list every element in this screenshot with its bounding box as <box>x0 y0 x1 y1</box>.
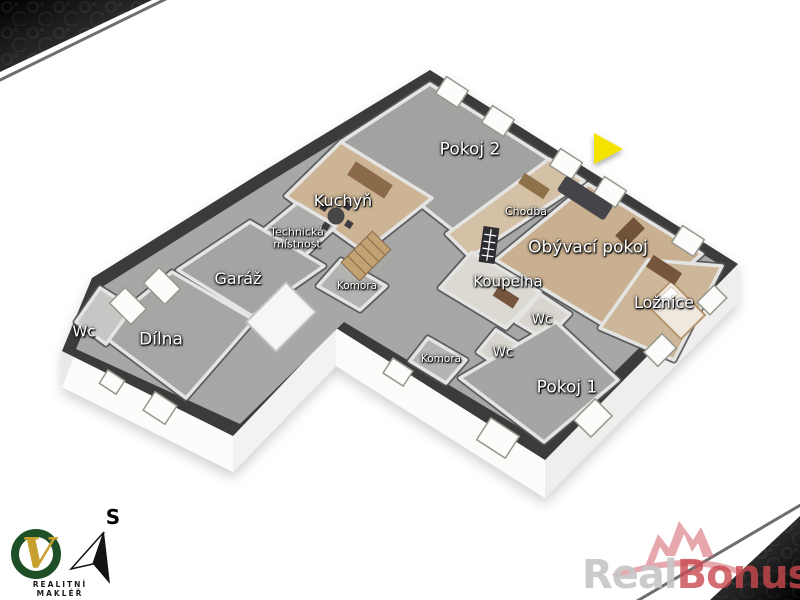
room-label-pokoj-1: Pokoj 1 <box>537 378 598 397</box>
compass-label: S <box>106 505 120 529</box>
watermark-real: Real <box>582 552 677 598</box>
building <box>62 70 738 498</box>
room-label-loznice: Ložnice <box>634 294 694 312</box>
brand-logo: V <box>15 529 59 578</box>
room-label-obyvaci-pokoj: Obývací pokoj <box>528 238 648 257</box>
top-left-corner-decor <box>0 0 172 82</box>
room-label-garaz: Garáž <box>215 270 262 288</box>
floorplan-stage: V S Pokoj 2 Kuchyň Technická místnost Ga… <box>0 0 800 600</box>
room-label-pokoj-2: Pokoj 2 <box>440 140 501 159</box>
room-label-technicka-mistnost: Technická místnost <box>270 227 324 252</box>
technicka-line2: místnost <box>270 239 324 251</box>
room-label-dilna: Dílna <box>139 330 183 349</box>
room-label-kuchyn: Kuchyň <box>314 192 372 210</box>
room-label-komora-2: Komora <box>421 354 461 366</box>
compass: S <box>71 505 120 584</box>
dining-table <box>328 208 345 225</box>
room-label-chodba: Chodba <box>505 206 547 218</box>
room-label-koupelna: Koupelna <box>473 274 542 291</box>
room-label-wc-low: Wc <box>493 345 514 360</box>
compass-needle-dark-half <box>93 532 110 584</box>
watermark-bonus: Bonus <box>677 552 800 598</box>
room-label-wc-left: Wc <box>72 324 95 341</box>
realbonus-watermark: RealBonuscz <box>582 552 800 598</box>
logo-monogram: V <box>22 529 59 578</box>
direction-arrow-icon[interactable] <box>594 133 623 164</box>
room-label-wc-mid: Wc <box>532 312 553 327</box>
logo-tagline: REALITNÍ MAKLÉŘ <box>8 580 112 598</box>
room-label-komora-1: Komora <box>337 281 377 293</box>
